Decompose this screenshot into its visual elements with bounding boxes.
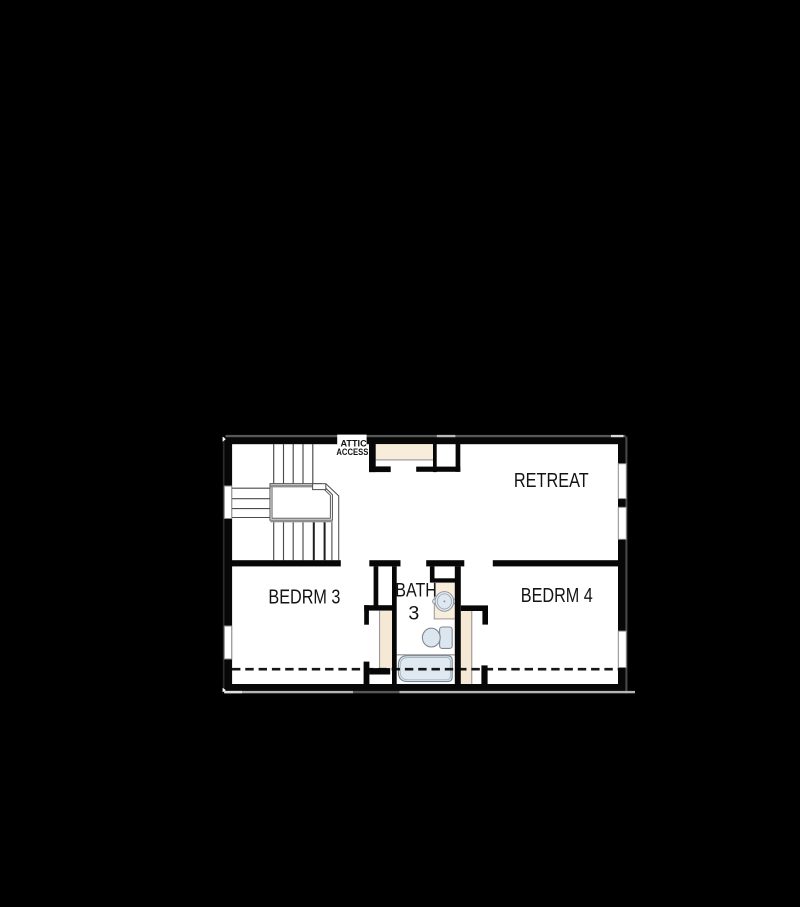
- svg-text:BATH: BATH: [395, 579, 437, 601]
- svg-text:BEDRM 4: BEDRM 4: [521, 585, 593, 607]
- svg-text:ACCESS: ACCESS: [336, 447, 368, 457]
- svg-text:3: 3: [408, 603, 419, 625]
- svg-text:BEDRM 3: BEDRM 3: [268, 586, 340, 608]
- svg-text:RETREAT: RETREAT: [514, 469, 589, 492]
